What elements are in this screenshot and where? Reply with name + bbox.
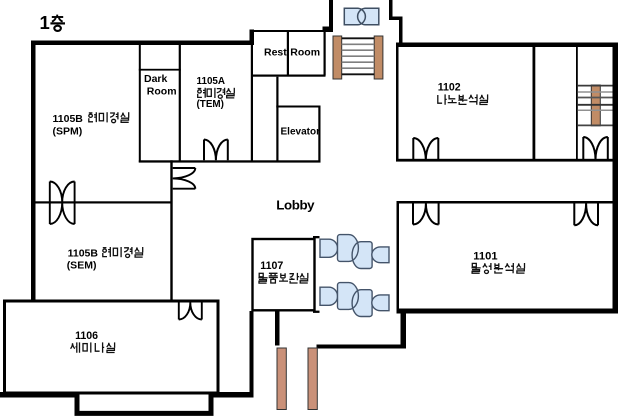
svg-text:Rest: Rest	[264, 46, 287, 58]
svg-text:Elevator: Elevator	[281, 127, 321, 138]
svg-text:1105B: 1105B	[53, 113, 84, 125]
svg-text:(SPM): (SPM)	[53, 125, 83, 137]
svg-text:1101: 1101	[473, 250, 497, 262]
svg-text:Room: Room	[147, 86, 177, 98]
svg-text:(SEM): (SEM)	[67, 259, 97, 271]
svg-text:(TEM): (TEM)	[197, 99, 224, 110]
svg-text:1105A: 1105A	[197, 76, 226, 87]
svg-text:Room: Room	[290, 46, 320, 58]
svg-text:1107: 1107	[260, 260, 283, 272]
svg-text:1106: 1106	[75, 330, 98, 342]
svg-text:1102: 1102	[438, 82, 461, 94]
svg-text:Lobby: Lobby	[276, 197, 315, 212]
svg-text:1105B: 1105B	[68, 247, 99, 259]
svg-text:1: 1	[40, 12, 50, 33]
svg-text:Dark: Dark	[144, 73, 168, 85]
